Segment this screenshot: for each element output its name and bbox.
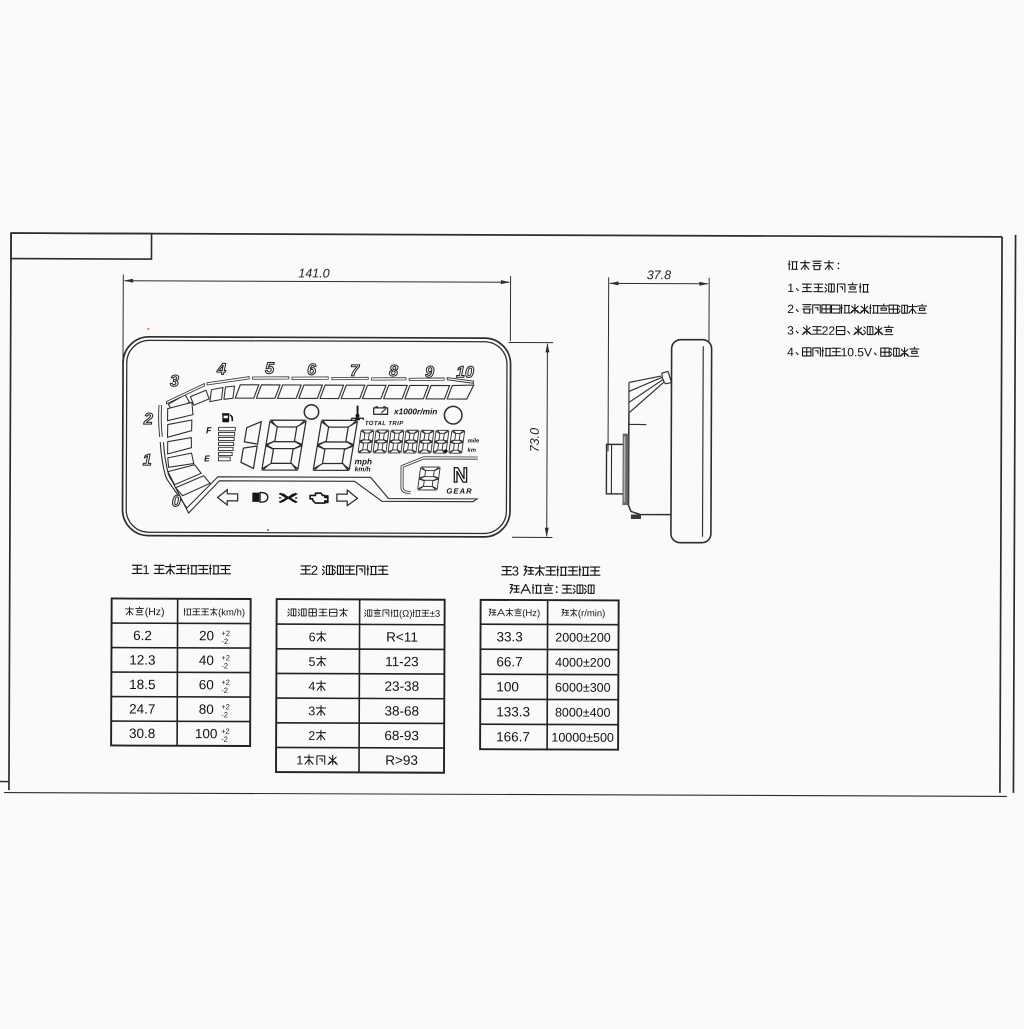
svg-text:mph: mph [355,457,372,466]
svg-text:100: 100 [195,726,218,741]
svg-text:E: E [204,453,210,463]
svg-text:-2: -2 [221,735,228,744]
svg-text:4: 4 [787,345,794,359]
svg-text:10.5V: 10.5V [841,345,872,359]
svg-text:8: 8 [389,363,398,380]
svg-text:23-38: 23-38 [385,679,420,694]
svg-text:1: 1 [142,562,149,577]
svg-text:60: 60 [199,677,214,692]
svg-text:(r/min): (r/min) [578,608,605,619]
svg-text:24.7: 24.7 [129,702,155,717]
svg-text:3: 3 [512,563,519,578]
svg-text:5: 5 [308,655,315,669]
svg-text:133.3: 133.3 [496,704,530,719]
svg-text:F: F [206,425,212,435]
svg-text:30.8: 30.8 [129,726,155,741]
svg-text:38-68: 38-68 [384,704,419,719]
svg-text:10: 10 [456,364,474,381]
svg-text:5: 5 [265,361,275,378]
svg-text:2: 2 [143,411,153,428]
svg-text:(Ω): (Ω) [399,609,412,620]
svg-text:40: 40 [199,653,214,668]
svg-text:6: 6 [307,362,316,379]
svg-text:11-23: 11-23 [385,654,419,669]
svg-text:-2: -2 [221,710,228,719]
svg-text:-2: -2 [221,686,228,695]
svg-text:2: 2 [787,302,794,316]
svg-text:6000±300: 6000±300 [555,681,611,695]
svg-text:x1000r/min: x1000r/min [393,406,437,416]
svg-text:R>93: R>93 [385,753,418,768]
svg-text:9: 9 [425,364,434,381]
svg-text:6.2: 6.2 [133,628,152,643]
svg-text:68-93: 68-93 [384,728,419,743]
svg-text:22: 22 [822,324,836,338]
svg-text:33.3: 33.3 [496,629,522,644]
svg-text:12.3: 12.3 [129,653,155,668]
svg-text:141.0: 141.0 [298,266,329,280]
svg-text:GEAR: GEAR [446,487,472,496]
svg-text:10000±500: 10000±500 [551,731,614,745]
svg-text:4: 4 [308,679,315,693]
svg-text:km/h: km/h [355,466,371,473]
svg-text:3: 3 [787,324,794,338]
svg-text:(Hz): (Hz) [145,606,165,618]
svg-text:(km/h): (km/h) [218,607,245,618]
svg-text:mile: mile [468,439,480,445]
svg-text:20: 20 [199,628,214,643]
svg-text:-2: -2 [221,637,228,646]
svg-text:TRIP: TRIP [388,421,404,427]
svg-text:2000±200: 2000±200 [555,631,611,645]
svg-text:N: N [453,464,468,487]
svg-text:3: 3 [308,704,315,718]
svg-text:2: 2 [311,563,318,578]
svg-text:0: 0 [172,493,181,510]
svg-text:37.8: 37.8 [647,268,671,282]
svg-text:2: 2 [308,729,315,743]
svg-text:73.0: 73.0 [528,428,542,452]
svg-text:TOTAL: TOTAL [365,421,386,427]
svg-text:8000±400: 8000±400 [555,706,611,720]
svg-text:18.5: 18.5 [129,677,155,692]
svg-text:4000±200: 4000±200 [555,656,611,670]
svg-text:R<11: R<11 [386,630,418,645]
svg-text:66.7: 66.7 [496,654,522,669]
svg-text:3: 3 [170,373,179,390]
svg-text:±3: ±3 [430,609,441,620]
svg-text:1: 1 [787,281,794,295]
svg-text:-2: -2 [221,661,228,670]
svg-text:(Hz): (Hz) [522,608,540,619]
svg-text:4: 4 [216,361,226,378]
svg-text:6: 6 [309,630,316,644]
svg-text:166.7: 166.7 [496,729,530,744]
svg-text:1: 1 [143,452,152,469]
svg-text:km: km [468,448,476,454]
svg-text:80: 80 [199,702,214,717]
svg-text:100: 100 [496,679,519,694]
svg-text:7: 7 [350,363,360,380]
svg-text:1: 1 [296,753,303,767]
